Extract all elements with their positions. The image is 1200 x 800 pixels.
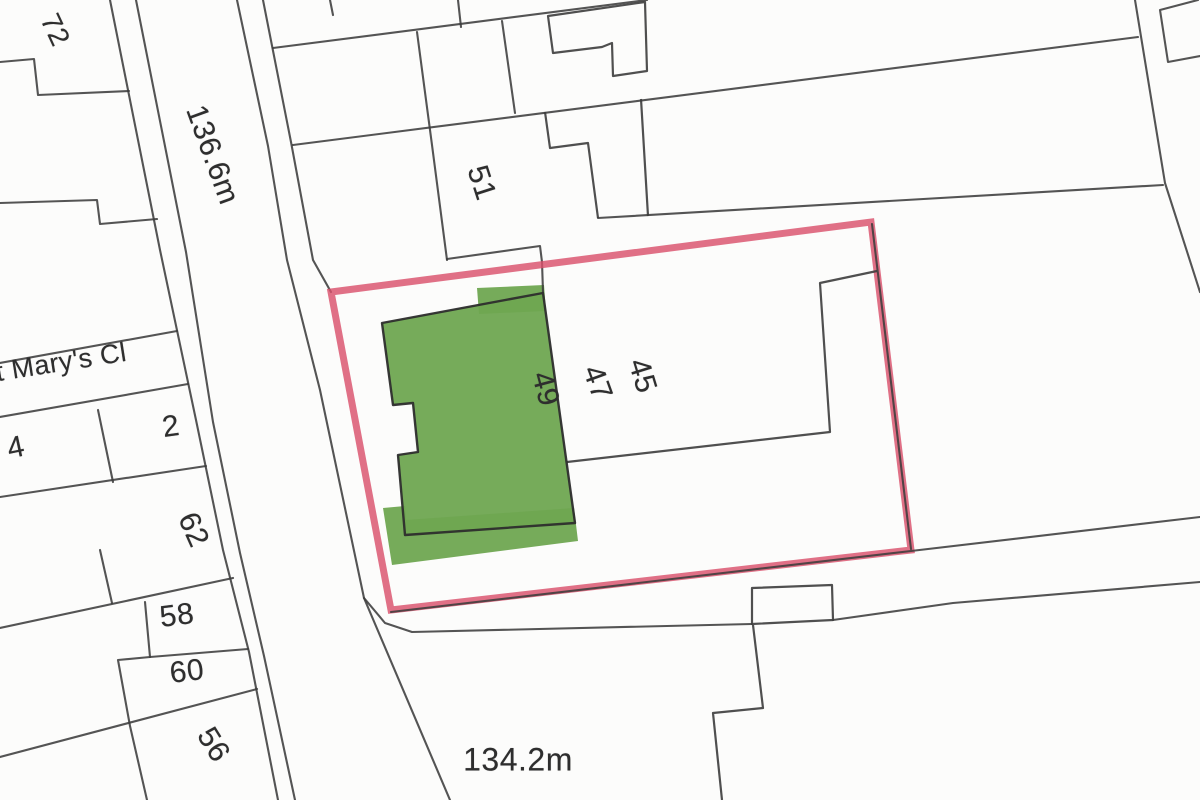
parcel-62-south-boundary: [0, 578, 233, 628]
north-parcel-lines: [273, 0, 1200, 292]
northeast-corner-parcel: [1160, 0, 1200, 62]
top-edge-tick-west: [330, 0, 333, 15]
east-long-boundary: [1135, 0, 1200, 292]
spot-height-south: 134.2m: [463, 742, 573, 779]
south-boundary-continuation: [833, 582, 1200, 620]
parcel-58-60-56-west-edge: [118, 602, 150, 800]
parcel-51-west-divider: [417, 32, 447, 260]
rear-boundary-of-51-block: [598, 185, 1163, 218]
south-l-shaped-building: [713, 625, 763, 800]
house-number-60: 60: [168, 653, 206, 691]
parcel-62-west-divider: [100, 550, 112, 603]
north-divider-short: [502, 21, 515, 113]
parcel-4-2-divider: [98, 410, 113, 482]
parcel-step-line: [0, 200, 157, 224]
site-location-plan: 72 136.6m St Mary's Cl 4 2 62 58 60 56 5…: [0, 0, 1200, 800]
top-edge-tick-east: [458, 0, 461, 27]
building-north-block: [548, 2, 647, 76]
south-small-outbuilding: [752, 585, 833, 624]
house-number-58: 58: [158, 597, 196, 635]
building-51-outline: [545, 99, 648, 218]
parcel-4-2-south-boundary: [0, 466, 206, 497]
road-east-kerb-outer: [263, 0, 331, 292]
building-49-highlight-main: [382, 293, 575, 535]
site-east-black-boundary: [872, 224, 911, 549]
building-45-47-outline: [567, 271, 877, 462]
parcel-72-boundary: [0, 59, 129, 95]
